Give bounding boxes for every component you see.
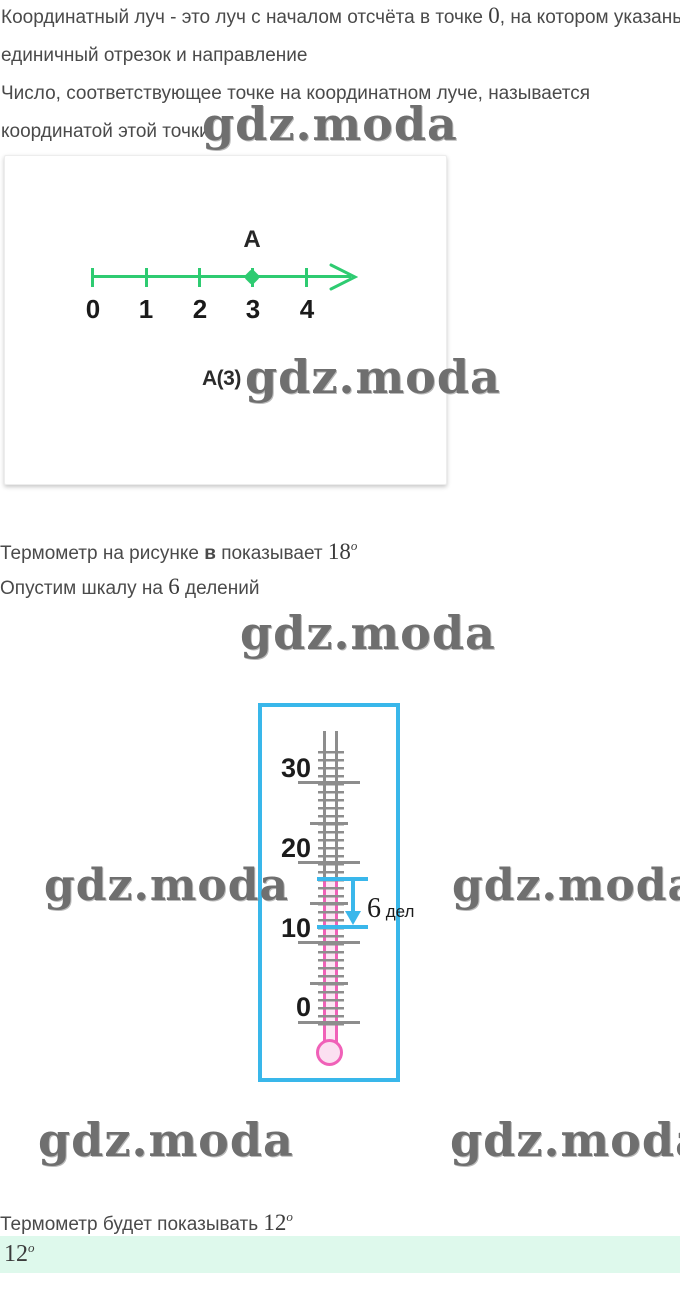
drop-annotation: 6 дел bbox=[367, 893, 414, 925]
thermometer-bulb bbox=[316, 1039, 343, 1066]
ray-number-4: 4 bbox=[295, 294, 319, 325]
answer-highlight-bar: 12o bbox=[0, 1236, 680, 1273]
answer-degree-sup: o bbox=[28, 1240, 35, 1255]
thermo-paragraph: Термометр на рисунке в показывает 18o Оп… bbox=[0, 529, 357, 605]
result-paragraph: Термометр будет показывать 12o bbox=[0, 1200, 293, 1241]
thermo-line-1: Термометр на рисунке в показывает 18o bbox=[0, 529, 357, 570]
ray-number-2: 2 bbox=[188, 294, 212, 325]
watermark-left: gdz.moda bbox=[44, 864, 289, 908]
drop-arrow-head-icon bbox=[345, 911, 361, 925]
result-value: 12 bbox=[263, 1210, 286, 1235]
intro-line-1: Координатный луч - это луч с началом отс… bbox=[1, 0, 680, 37]
ray-number-3: 3 bbox=[241, 294, 265, 325]
degree-sup: o bbox=[351, 538, 358, 553]
thermo-line-2: Опустим шкалу на 6 делений bbox=[0, 570, 357, 605]
ray-figure-card: A 0 1 2 3 4 A(3) gdz.moda bbox=[4, 155, 447, 485]
ray-number-0: 0 bbox=[81, 294, 105, 325]
tick-5 bbox=[310, 982, 348, 985]
scale-label-30: 30 bbox=[253, 753, 311, 783]
reading-value: 18 bbox=[328, 539, 351, 564]
scale-label-10: 10 bbox=[253, 913, 311, 943]
ray-tick-4 bbox=[305, 268, 308, 287]
watermark-bottom-right: gdz.moda bbox=[450, 1117, 680, 1163]
ray-arrowhead-icon bbox=[328, 262, 358, 292]
marker-line-18 bbox=[317, 877, 368, 881]
ray-answer-caption: A(3) bbox=[202, 367, 241, 391]
tick-15 bbox=[310, 902, 348, 905]
scale-label-20: 20 bbox=[253, 833, 311, 863]
result-degree-sup: o bbox=[286, 1209, 293, 1224]
ray-tick-1 bbox=[145, 268, 148, 287]
scale-label-0: 0 bbox=[253, 992, 311, 1022]
drop-unit: дел bbox=[381, 902, 414, 921]
solution-page: Координатный луч - это луч с началом отс… bbox=[0, 0, 680, 1308]
point-A-label: A bbox=[239, 226, 265, 254]
thermometer-minor-ticks bbox=[318, 751, 344, 1026]
watermark-right: gdz.moda bbox=[452, 864, 680, 908]
intro-line-2: единичный отрезок и направление bbox=[1, 37, 680, 75]
point-A-marker bbox=[244, 269, 261, 286]
watermark-above-thermometer: gdz.moda bbox=[240, 610, 496, 656]
watermark-top: gdz.moda bbox=[202, 101, 458, 147]
drop-arrow-shaft bbox=[351, 881, 355, 912]
watermark-bottom-left: gdz.moda bbox=[38, 1117, 294, 1163]
ray-axis-line bbox=[93, 275, 351, 278]
ray-tick-2 bbox=[198, 268, 201, 287]
marker-line-12 bbox=[317, 925, 368, 929]
math-zero: 0 bbox=[488, 3, 500, 28]
ray-number-1: 1 bbox=[134, 294, 158, 325]
answer-value: 12o bbox=[4, 1240, 35, 1268]
figure-letter: в bbox=[204, 543, 216, 564]
ray-tick-0 bbox=[91, 268, 94, 287]
watermark-card: gdz.moda bbox=[245, 354, 501, 400]
tick-25 bbox=[310, 822, 348, 825]
divisions-value: 6 bbox=[168, 574, 180, 599]
drop-count: 6 bbox=[367, 893, 381, 924]
